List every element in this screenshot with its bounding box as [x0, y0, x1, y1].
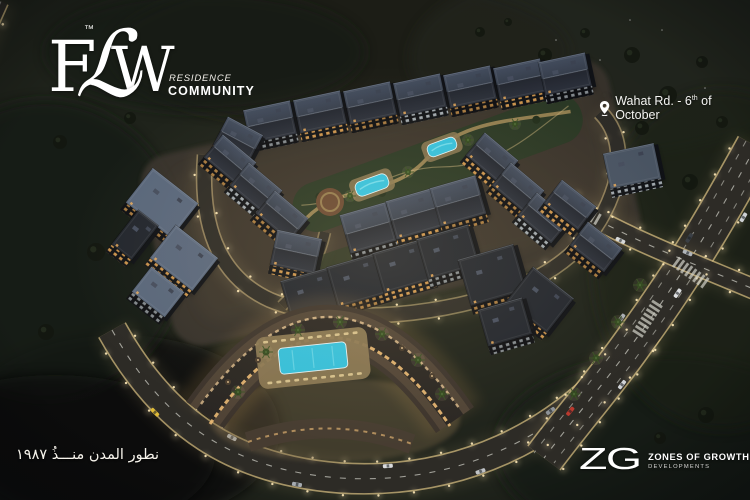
brand-community-label: COMMUNITY — [168, 84, 255, 98]
location-badge: Wahat Rd. - 6th of October — [599, 94, 750, 122]
developer-wordmark: ZONES OF GROWTH® DEVELOPMENTS — [648, 452, 750, 470]
arabic-tagline: نطور المدن منـــذُ ١٩٨٧ — [16, 447, 159, 463]
location-text: Wahat Rd. - 6th of October — [615, 94, 750, 122]
brand-residence-label: RESIDENCE — [169, 73, 232, 84]
developer-logo: ZG ZONES OF GROWTH® DEVELOPMENTS — [579, 443, 750, 474]
logo-script-l: ℒ — [75, 11, 141, 118]
location-pin-icon — [599, 100, 610, 117]
poster: ™ FℒW RESIDENCE COMMUNITY Wahat Rd. - 6t… — [0, 0, 750, 500]
brand-logo: FℒW — [48, 14, 175, 106]
developer-monogram: ZG — [579, 443, 641, 474]
